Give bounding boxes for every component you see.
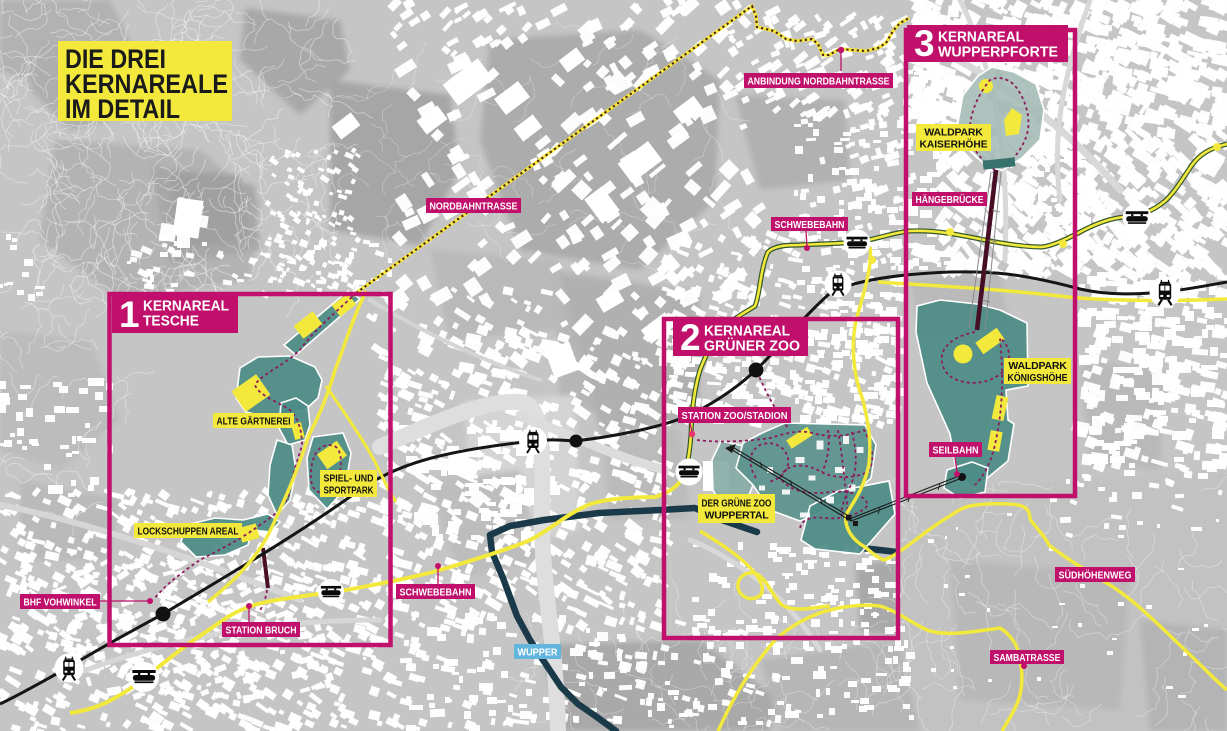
svg-text:DER GRÜNE ZOO: DER GRÜNE ZOO bbox=[702, 496, 772, 509]
svg-text:SAMBATRASSE: SAMBATRASSE bbox=[994, 652, 1061, 664]
svg-text:SCHWEBEBAHN: SCHWEBEBAHN bbox=[775, 219, 845, 231]
svg-text:KAISERHÖHE: KAISERHÖHE bbox=[920, 137, 988, 150]
svg-text:SCHWEBEBAHN: SCHWEBEBAHN bbox=[400, 586, 472, 598]
svg-text:3: 3 bbox=[914, 23, 935, 64]
svg-text:SÜDHÖHENWEG: SÜDHÖHENWEG bbox=[1059, 568, 1132, 581]
svg-text:LOCKSCHUPPEN AREAL: LOCKSCHUPPEN AREAL bbox=[138, 525, 239, 537]
svg-text:KERNAREAL: KERNAREAL bbox=[143, 299, 229, 315]
svg-text:1: 1 bbox=[119, 294, 140, 335]
svg-text:KERNAREAL: KERNAREAL bbox=[938, 30, 1024, 46]
svg-text:KÖNIGSHÖHE: KÖNIGSHÖHE bbox=[1008, 371, 1068, 384]
svg-text:HÄNGEBRÜCKE: HÄNGEBRÜCKE bbox=[916, 193, 984, 206]
svg-text:WUPPER: WUPPER bbox=[518, 646, 558, 658]
svg-text:STATION ZOO/STADION: STATION ZOO/STADION bbox=[682, 410, 788, 422]
svg-text:WUPPERTAL: WUPPERTAL bbox=[705, 509, 770, 521]
svg-text:2: 2 bbox=[680, 317, 701, 358]
svg-text:ANBINDUNG NORDBAHNTRASSE: ANBINDUNG NORDBAHNTRASSE bbox=[748, 75, 890, 87]
svg-text:TESCHE: TESCHE bbox=[143, 314, 199, 330]
svg-text:BHF VOHWINKEL: BHF VOHWINKEL bbox=[24, 596, 97, 608]
svg-text:ALTE GÄRTNEREI: ALTE GÄRTNEREI bbox=[217, 414, 291, 427]
svg-text:KERNAREAL: KERNAREAL bbox=[704, 324, 790, 340]
svg-text:SPIEL- UND: SPIEL- UND bbox=[324, 472, 374, 484]
svg-text:SPORTPARK: SPORTPARK bbox=[324, 484, 374, 496]
svg-text:WALDPARK: WALDPARK bbox=[1008, 360, 1067, 372]
svg-text:NORDBAHNTRASSE: NORDBAHNTRASSE bbox=[430, 200, 518, 212]
svg-text:WUPPERPFORTE: WUPPERPFORTE bbox=[938, 45, 1058, 61]
svg-text:GRÜNER ZOO: GRÜNER ZOO bbox=[704, 338, 800, 355]
svg-text:STATION BRUCH: STATION BRUCH bbox=[226, 624, 297, 636]
svg-text:WALDPARK: WALDPARK bbox=[924, 126, 983, 138]
svg-text:IM DETAIL: IM DETAIL bbox=[65, 94, 180, 124]
svg-text:SEILBAHN: SEILBAHN bbox=[933, 444, 979, 456]
